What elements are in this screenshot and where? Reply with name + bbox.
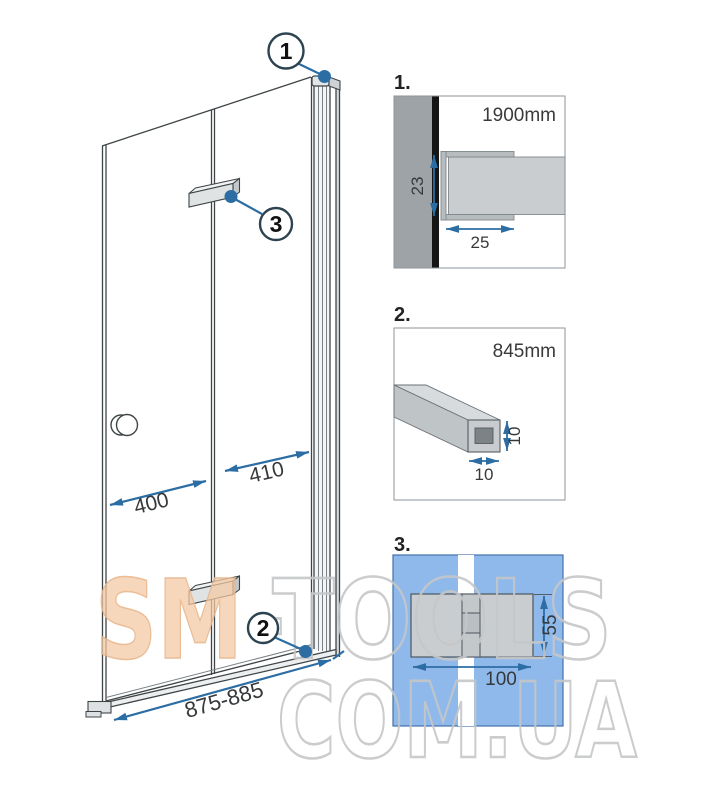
tube-inner-hole: [475, 428, 493, 444]
door-knob: [111, 415, 138, 436]
square-tube: [394, 385, 500, 452]
callout-3-dot: [225, 190, 238, 203]
detail-2-stabilizer-bar: 2. 845mm 10 10: [394, 304, 565, 500]
dim-23-label: 23: [408, 177, 427, 196]
detail-1-dim-25: 25: [446, 229, 514, 252]
callout-3: 3: [225, 190, 293, 240]
detail-1-wall-profile: 1. 1900mm 23 25: [394, 72, 565, 268]
detail-2-length: 845mm: [493, 341, 556, 362]
detail-2-dim-10-horizontal: 10: [469, 461, 499, 484]
u-profile-section: [441, 152, 565, 221]
callout-1: 1: [269, 34, 332, 84]
dimension-400: 400: [110, 481, 206, 519]
dim-400-label: 400: [132, 488, 172, 519]
detail-1-length: 1900mm: [482, 105, 556, 126]
shower-door-technical-diagram: 400 410 875-885 1. 1900mm 23: [0, 0, 714, 802]
dimension-410: 410: [225, 452, 309, 488]
callout-2-dot: [299, 645, 312, 658]
diagram-canvas: 400 410 875-885 1. 1900mm 23: [0, 0, 714, 802]
detail-2-label: 2.: [394, 304, 411, 326]
watermark-sm: SM: [95, 556, 243, 684]
callout-3-number: 3: [270, 211, 283, 237]
detail-1-label: 1.: [394, 72, 411, 94]
glass-panel-section: [449, 157, 566, 215]
glass-top-edge: [102, 77, 311, 146]
detail-3-label: 3.: [394, 534, 411, 556]
callout-1-dot: [318, 70, 331, 83]
dim-10v-label: 10: [505, 427, 524, 446]
watermark-comua: COM.UA: [277, 660, 637, 782]
detail-2-dim-10-vertical: 10: [505, 421, 524, 451]
callout-1-number: 1: [280, 38, 293, 64]
rail-end-foot: [86, 712, 101, 718]
dim-10h-label: 10: [475, 465, 494, 484]
callout-2-number: 2: [257, 615, 270, 641]
wall-seal-strip: [432, 96, 439, 268]
dim-410-label: 410: [247, 458, 286, 488]
watermark: SM -TOOLS COM.UA: [95, 556, 637, 782]
dim-25-label: 25: [471, 233, 490, 252]
